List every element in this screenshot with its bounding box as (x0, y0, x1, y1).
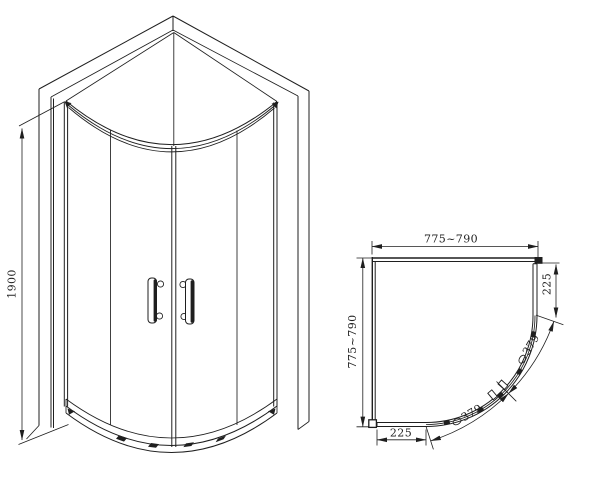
plan-lower-arc-dimension-label: 379 (459, 402, 485, 424)
plan-upper-arc-dimension: 379 (509, 321, 554, 393)
height-dimension-label: 1900 (6, 269, 19, 299)
sliding-door-panels (64, 33, 277, 448)
plan-bottom-side-dimension: 225 (377, 427, 426, 446)
plan-left-wall (369, 257, 377, 427)
plan-top-wall (372, 257, 543, 264)
height-dimension: 1900 (6, 102, 65, 440)
plan-bottom-side-dimension-label: 225 (390, 427, 412, 440)
door-handle-right (180, 279, 194, 324)
door-handle-left (148, 278, 164, 323)
shower-enclosure-technical-drawing: 1900 (0, 0, 600, 479)
plan-right-side-dimension-label: 225 (541, 273, 554, 295)
wall-end-profile-bottom-left (369, 420, 377, 428)
plan-depth-dimension: 775~790 (346, 258, 372, 427)
front-elevation-view: 1900 (6, 16, 310, 453)
plan-view: 775~790 775~790 225 225 379 (346, 233, 563, 450)
plan-width-dimension-label: 775~790 (424, 233, 478, 246)
right-wall (298, 91, 309, 430)
plan-roller-markers (444, 331, 536, 425)
plan-side-panel-right (533, 264, 537, 316)
plan-depth-dimension-label: 775~790 (346, 314, 359, 368)
radial-extension-lines (426, 315, 563, 449)
curved-top-track (66, 101, 277, 152)
plan-width-dimension: 775~790 (372, 233, 538, 260)
left-wall (19, 89, 69, 445)
technical-drawing-page: 1900 (0, 0, 600, 479)
arc-length-symbol (452, 417, 462, 426)
wall-end-profile-top-right (535, 257, 543, 264)
plan-right-side-dimension: 225 (541, 263, 560, 318)
